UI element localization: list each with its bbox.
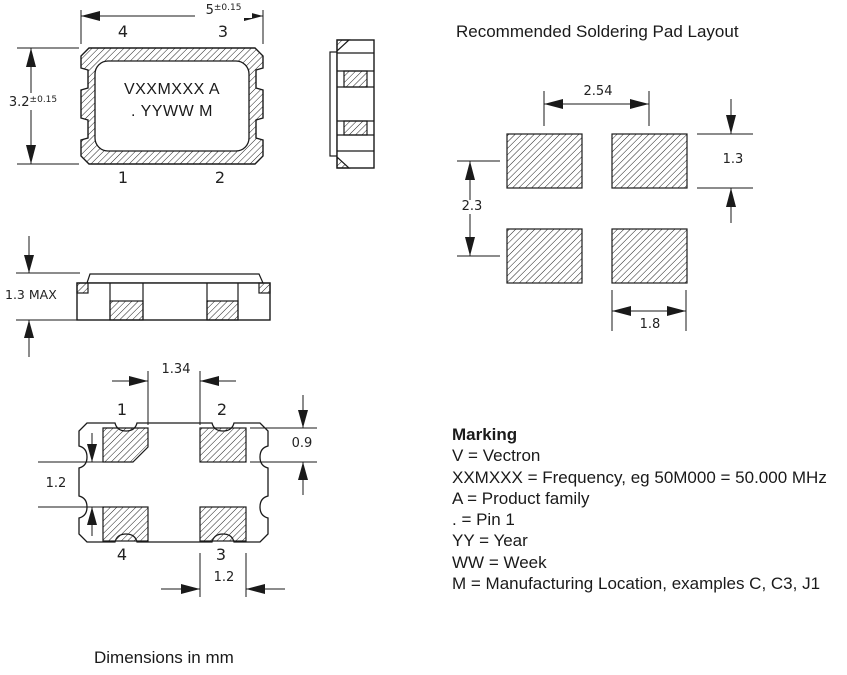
dim-pad-height-label: 0.9 bbox=[287, 437, 317, 451]
side-view-corner bbox=[259, 283, 270, 293]
dim-land-height-label: 1.3 bbox=[714, 153, 752, 167]
dim-land-width-label: 1.8 bbox=[630, 318, 670, 332]
dim-height-label: 3.2±0.15 bbox=[6, 93, 60, 110]
end-view-drawing bbox=[330, 40, 374, 168]
marking-line: WW = Week bbox=[452, 552, 827, 573]
marking-line: V = Vectron bbox=[452, 445, 827, 466]
solder-pad bbox=[507, 134, 582, 188]
bottom-pin-label-2: 2 bbox=[212, 401, 232, 418]
bottom-pad-4 bbox=[103, 507, 148, 541]
side-view-body bbox=[77, 283, 270, 320]
dim-thickness-label: 1.3 MAX bbox=[4, 288, 62, 302]
end-view-body bbox=[337, 40, 374, 168]
pin-label-2: 2 bbox=[210, 169, 230, 186]
end-view-lid bbox=[330, 52, 337, 156]
side-view-pad bbox=[207, 301, 238, 320]
chip-marking-line1: VXXMXXX A bbox=[95, 80, 249, 100]
marking-line: A = Product family bbox=[452, 488, 827, 509]
dim-pitch-y-label: 2.3 bbox=[455, 200, 489, 214]
solder-pad bbox=[507, 229, 582, 283]
bottom-view-drawing bbox=[38, 371, 317, 597]
marking-line: M = Manufacturing Location, examples C, … bbox=[452, 573, 827, 594]
pad-layout-drawing bbox=[457, 91, 753, 331]
side-view-lid bbox=[87, 274, 263, 283]
side-view-corner bbox=[77, 283, 88, 293]
end-view-pad bbox=[344, 121, 367, 135]
pad-layout-title: Recommended Soldering Pad Layout bbox=[456, 22, 739, 42]
bottom-pad-3 bbox=[200, 507, 246, 541]
datasheet-page: 5±0.15 3.2±0.15 4 3 1 2 VXXMXXX A . YYWW… bbox=[0, 0, 847, 675]
dim-pad-width-label: 1.2 bbox=[206, 571, 242, 585]
units-note: Dimensions in mm bbox=[94, 648, 234, 668]
marking-line: XXMXXX = Frequency, eg 50M000 = 50.000 M… bbox=[452, 467, 827, 488]
bottom-pin-label-4: 4 bbox=[112, 546, 132, 563]
chip-marking-line2: . YYWW M bbox=[95, 102, 249, 122]
bottom-pin-label-1: 1 bbox=[112, 401, 132, 418]
dim-width-label: 5±0.15 bbox=[195, 1, 252, 18]
dim-row-gap-label: 1.2 bbox=[40, 477, 72, 491]
side-view-pad bbox=[110, 301, 143, 320]
marking-heading: Marking bbox=[452, 424, 827, 445]
pin-label-4: 4 bbox=[113, 23, 133, 40]
marking-legend: Marking V = Vectron XXMXXX = Frequency, … bbox=[452, 424, 827, 594]
dim-pad-gap-label: 1.34 bbox=[157, 363, 195, 377]
end-view-pad bbox=[344, 71, 367, 87]
bottom-pin-label-3: 3 bbox=[211, 546, 231, 563]
solder-pad bbox=[612, 229, 687, 283]
marking-line: YY = Year bbox=[452, 530, 827, 551]
pin-label-1: 1 bbox=[113, 169, 133, 186]
marking-line: . = Pin 1 bbox=[452, 509, 827, 530]
dim-pitch-x-label: 2.54 bbox=[575, 85, 621, 99]
pin-label-3: 3 bbox=[213, 23, 233, 40]
solder-pad bbox=[612, 134, 687, 188]
bottom-pad-2 bbox=[200, 428, 246, 462]
